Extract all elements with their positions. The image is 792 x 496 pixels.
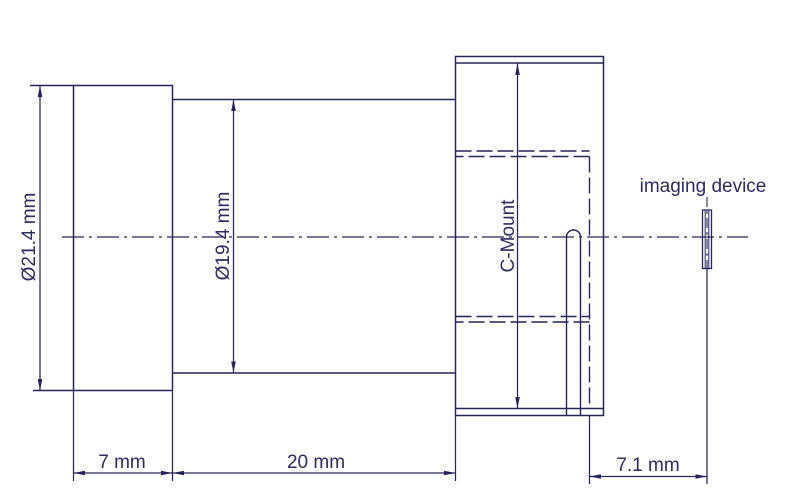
dimension-lines xyxy=(40,64,707,477)
extension-lines xyxy=(74,268,708,484)
label-c-mount: C-Mount xyxy=(498,199,519,273)
technical-drawing: Ø21.4 mm Ø19.4 mm C-Mount 7 mm 20 mm 7.1… xyxy=(0,0,792,496)
mount-slot xyxy=(567,230,581,416)
label-back-distance: 7.1 mm xyxy=(616,455,679,476)
block-outline xyxy=(456,57,604,416)
imaging-device-symbol xyxy=(703,197,712,269)
label-flange-diameter: Ø21.4 mm xyxy=(19,193,40,282)
label-imaging-device: imaging device xyxy=(640,176,767,197)
flange-outline xyxy=(74,86,173,391)
lens-front-flange xyxy=(30,86,173,391)
label-barrel-diameter: Ø19.4 mm xyxy=(213,192,234,281)
c-mount-hidden-thread-lines xyxy=(456,151,590,409)
c-mount-block xyxy=(456,57,604,416)
drawing-svg: Ø21.4 mm Ø19.4 mm C-Mount 7 mm 20 mm 7.1… xyxy=(0,0,792,496)
label-flange-length: 7 mm xyxy=(98,452,146,473)
label-barrel-length: 20 mm xyxy=(287,452,345,473)
